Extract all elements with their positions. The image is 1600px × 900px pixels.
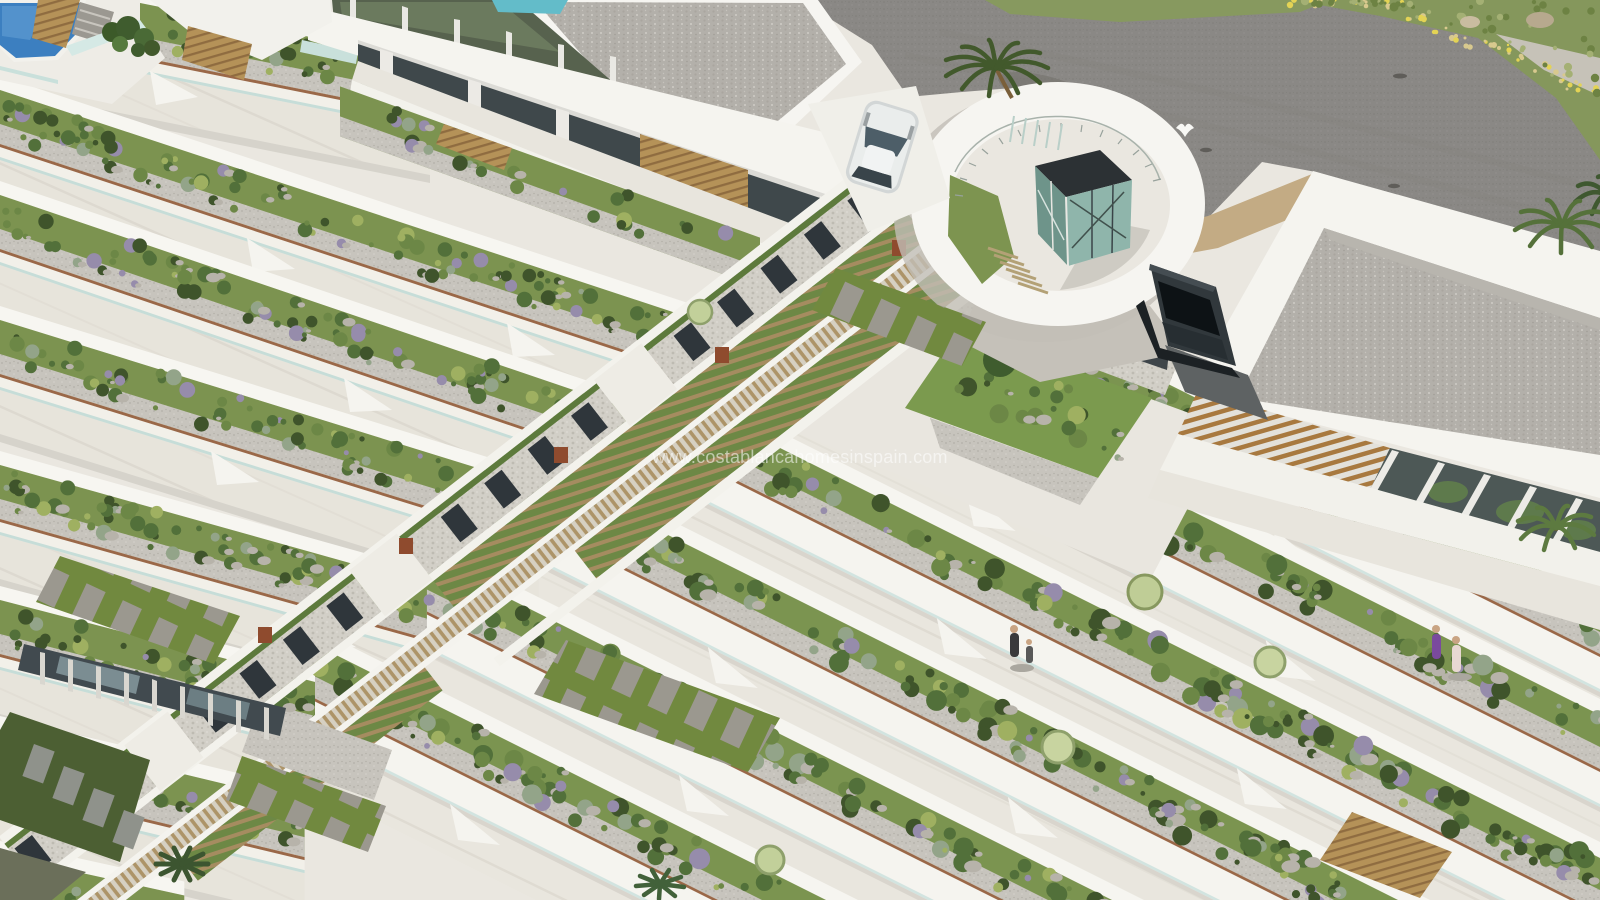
svg-text:www.costablancahomesinspain.co: www.costablancahomesinspain.com: [651, 447, 947, 467]
